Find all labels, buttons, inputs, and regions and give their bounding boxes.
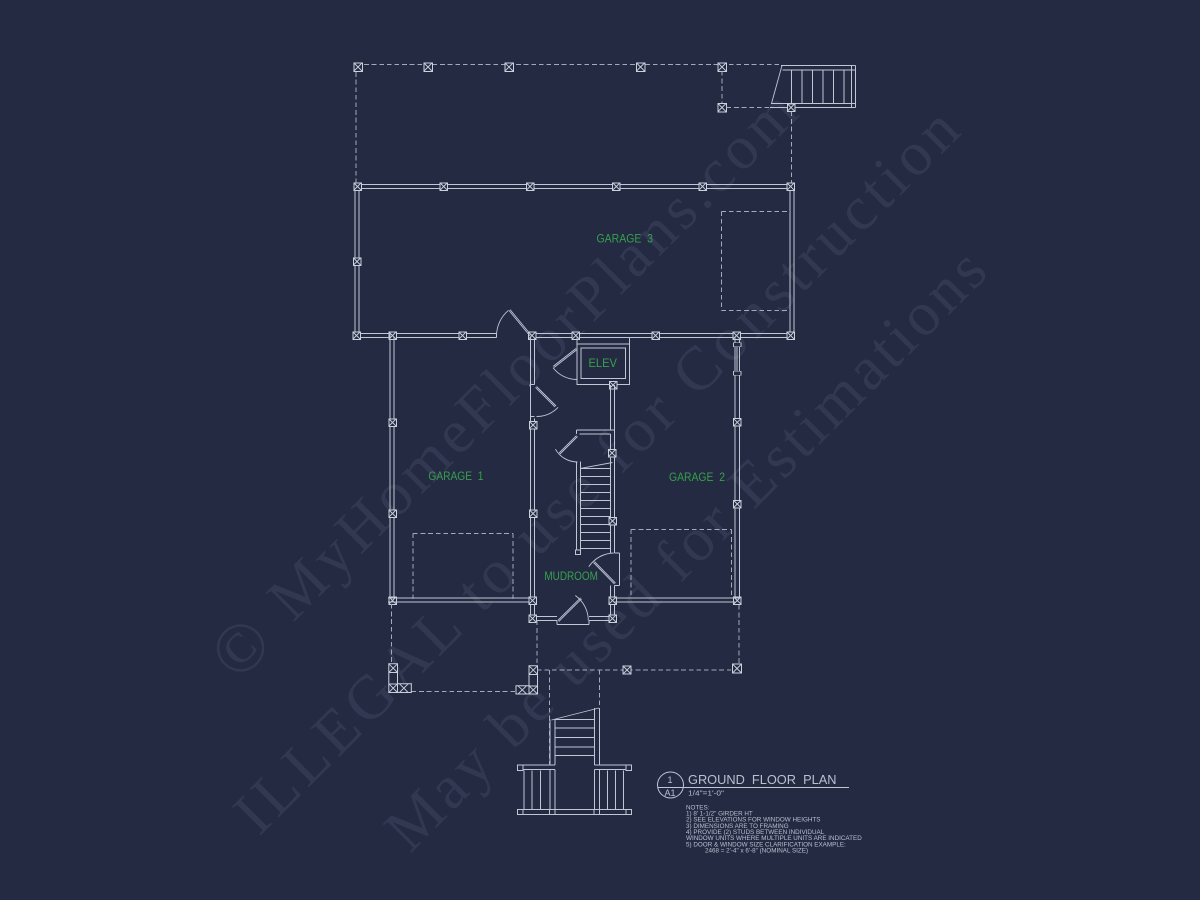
svg-text:ELEV: ELEV xyxy=(589,358,618,370)
svg-text:MUDROOM: MUDROOM xyxy=(544,571,598,583)
svg-text:2468 = 2'-4" x 6'-8" (NOMINAL: 2468 = 2'-4" x 6'-8" (NOMINAL SIZE) xyxy=(705,848,808,855)
svg-text:GARAGE 1: GARAGE 1 xyxy=(428,471,483,483)
svg-text:A1: A1 xyxy=(664,788,675,798)
svg-text:GARAGE 3: GARAGE 3 xyxy=(597,234,654,246)
svg-text:1/4"=1'-0": 1/4"=1'-0" xyxy=(688,790,725,797)
svg-text:1: 1 xyxy=(667,775,672,785)
svg-text:GARAGE 2: GARAGE 2 xyxy=(669,472,725,484)
svg-text:GROUND FLOOR PLAN: GROUND FLOOR PLAN xyxy=(688,772,837,787)
